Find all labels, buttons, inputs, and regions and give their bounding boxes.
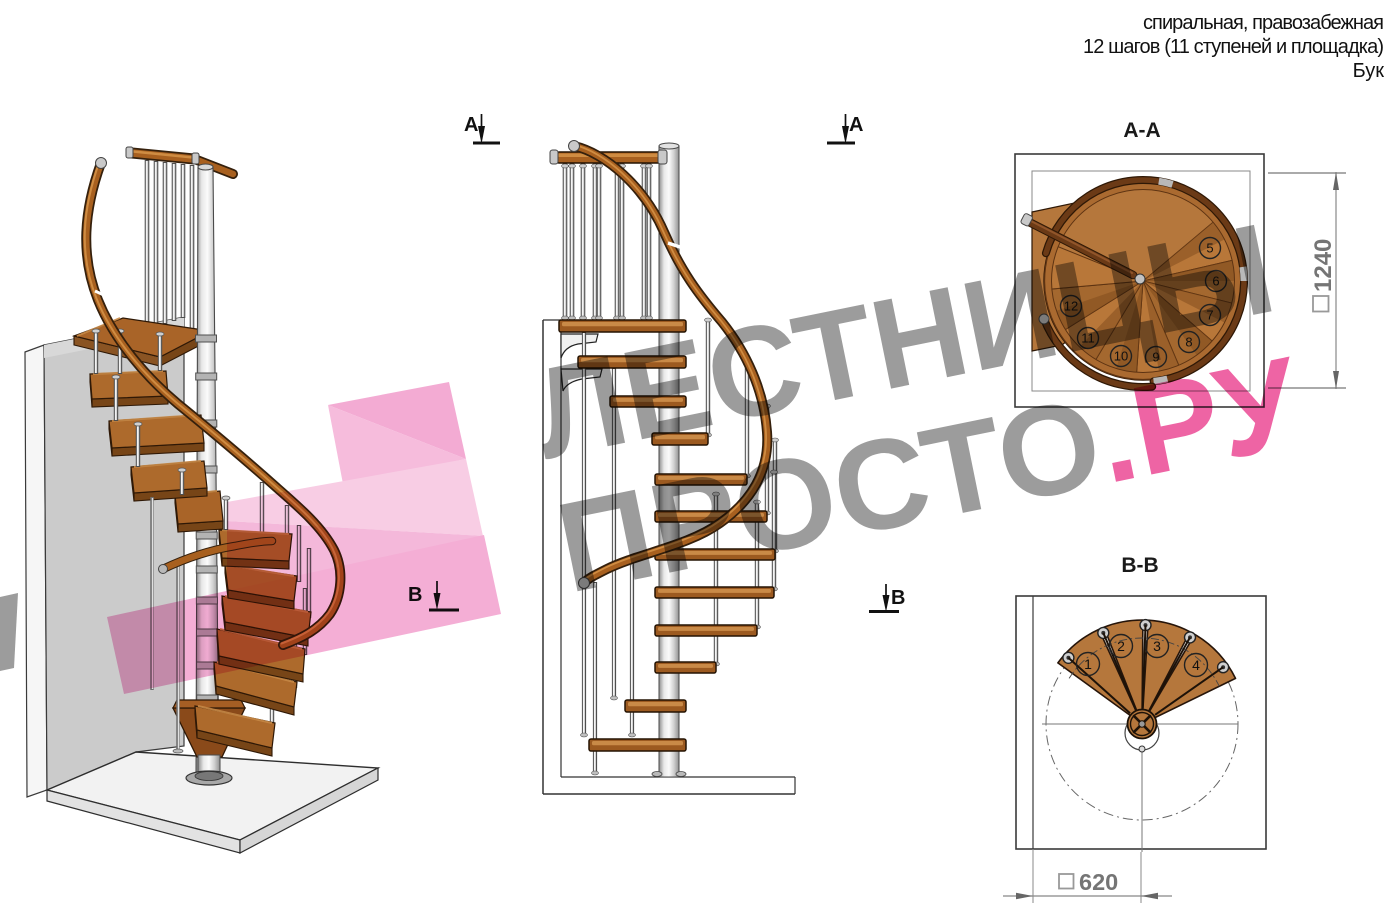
svg-text:2: 2 bbox=[1117, 638, 1125, 654]
svg-text:3: 3 bbox=[1153, 638, 1161, 654]
svg-text:А: А bbox=[849, 114, 863, 136]
svg-text:А-А: А-А bbox=[1123, 119, 1160, 142]
svg-text:В-В: В-В bbox=[1121, 554, 1158, 577]
svg-text:В: В bbox=[891, 587, 905, 609]
svg-text:4: 4 bbox=[1192, 657, 1200, 673]
svg-text:12 шагов (11 ступеней и площад: 12 шагов (11 ступеней и площадка) bbox=[1083, 36, 1384, 58]
svg-text:1: 1 bbox=[1084, 656, 1092, 672]
svg-text:620: 620 bbox=[1079, 869, 1118, 895]
svg-text:Бук: Бук bbox=[1353, 60, 1385, 82]
svg-text:спиральная, правозабежная: спиральная, правозабежная bbox=[1143, 12, 1384, 34]
svg-text:А: А bbox=[464, 114, 478, 136]
svg-text:1240: 1240 bbox=[1310, 239, 1337, 292]
